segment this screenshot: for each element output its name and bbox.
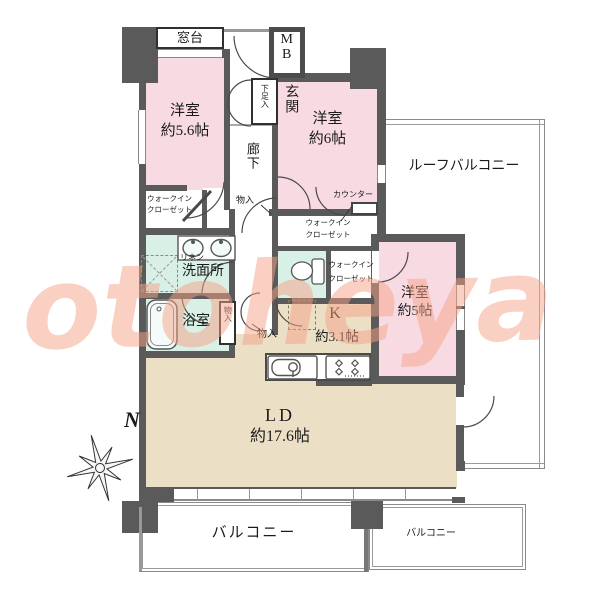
ld-label: LD 約17.6帖: [190, 404, 370, 448]
wic2-line2: クローゼット: [280, 229, 376, 241]
roof-balcony-label: ルーフバルコニー: [386, 158, 542, 176]
bedroom1-size: 約5.6帖: [146, 122, 224, 142]
kitchen-size-label: 約3.1帖: [295, 328, 379, 346]
kitchen-sink-icon: [268, 356, 317, 379]
ld-name: LD: [190, 404, 370, 427]
linen-label: リネン: [180, 253, 204, 263]
washroom-label: 洗面所: [172, 263, 234, 281]
wic1-label: ウォークイン クローゼット: [147, 193, 192, 216]
window-sill-label: 窓台: [156, 30, 224, 47]
wic3-line1: ウォークイン: [327, 258, 375, 272]
balcony-main-label: バルコニー: [139, 524, 369, 544]
ld-size: 約17.6帖: [190, 427, 370, 448]
floorplan: 窓台 MB 玄関 下足入 洋室 約5.6帖 洋室 約6帖 洋室 約5帖 LD 約…: [0, 0, 600, 600]
stove-icon: [326, 356, 370, 379]
storage-label-kitchen: 物入: [257, 328, 277, 341]
plan-overlay: [0, 0, 600, 600]
wic1-line1: ウォークイン: [147, 193, 192, 204]
wic3-line2: クローゼット: [327, 272, 375, 286]
north-label: N: [124, 406, 140, 435]
storage-label-bath: 物入: [222, 306, 232, 322]
kitchen-name-label: K: [300, 304, 370, 325]
wic2-label: ウォークイン クローゼット: [280, 217, 376, 241]
bedroom1-name: 洋室: [146, 102, 224, 122]
bedroom3-name: 洋室: [371, 285, 459, 303]
bedroom2-size: 約6帖: [278, 130, 377, 150]
wic2-line1: ウォークイン: [280, 217, 376, 229]
bedroom3-size: 約5帖: [371, 303, 459, 321]
corridor-label: 廊下: [243, 142, 260, 170]
wic1-line2: クローゼット: [147, 204, 192, 215]
bedroom2-name: 洋室: [278, 110, 377, 130]
storage-label-corridor: 物入: [236, 195, 254, 207]
bedroom1-label: 洋室 約5.6帖: [146, 102, 224, 141]
wic3-label: ウォークイン クローゼット: [327, 258, 375, 287]
bedroom3-label: 洋室 約5帖: [371, 285, 459, 321]
toilet-icon: [292, 259, 325, 284]
balcony-sub-label: バルコニー: [369, 527, 493, 540]
counter-label: カウンター: [333, 190, 373, 200]
bathroom-label: 浴室: [166, 313, 226, 331]
compass-rose: [58, 426, 141, 509]
bedroom2-label: 洋室 約6帖: [278, 110, 377, 149]
shoe-cabinet-label: 下足入: [259, 84, 269, 108]
meter-box-label: MB: [277, 32, 295, 62]
